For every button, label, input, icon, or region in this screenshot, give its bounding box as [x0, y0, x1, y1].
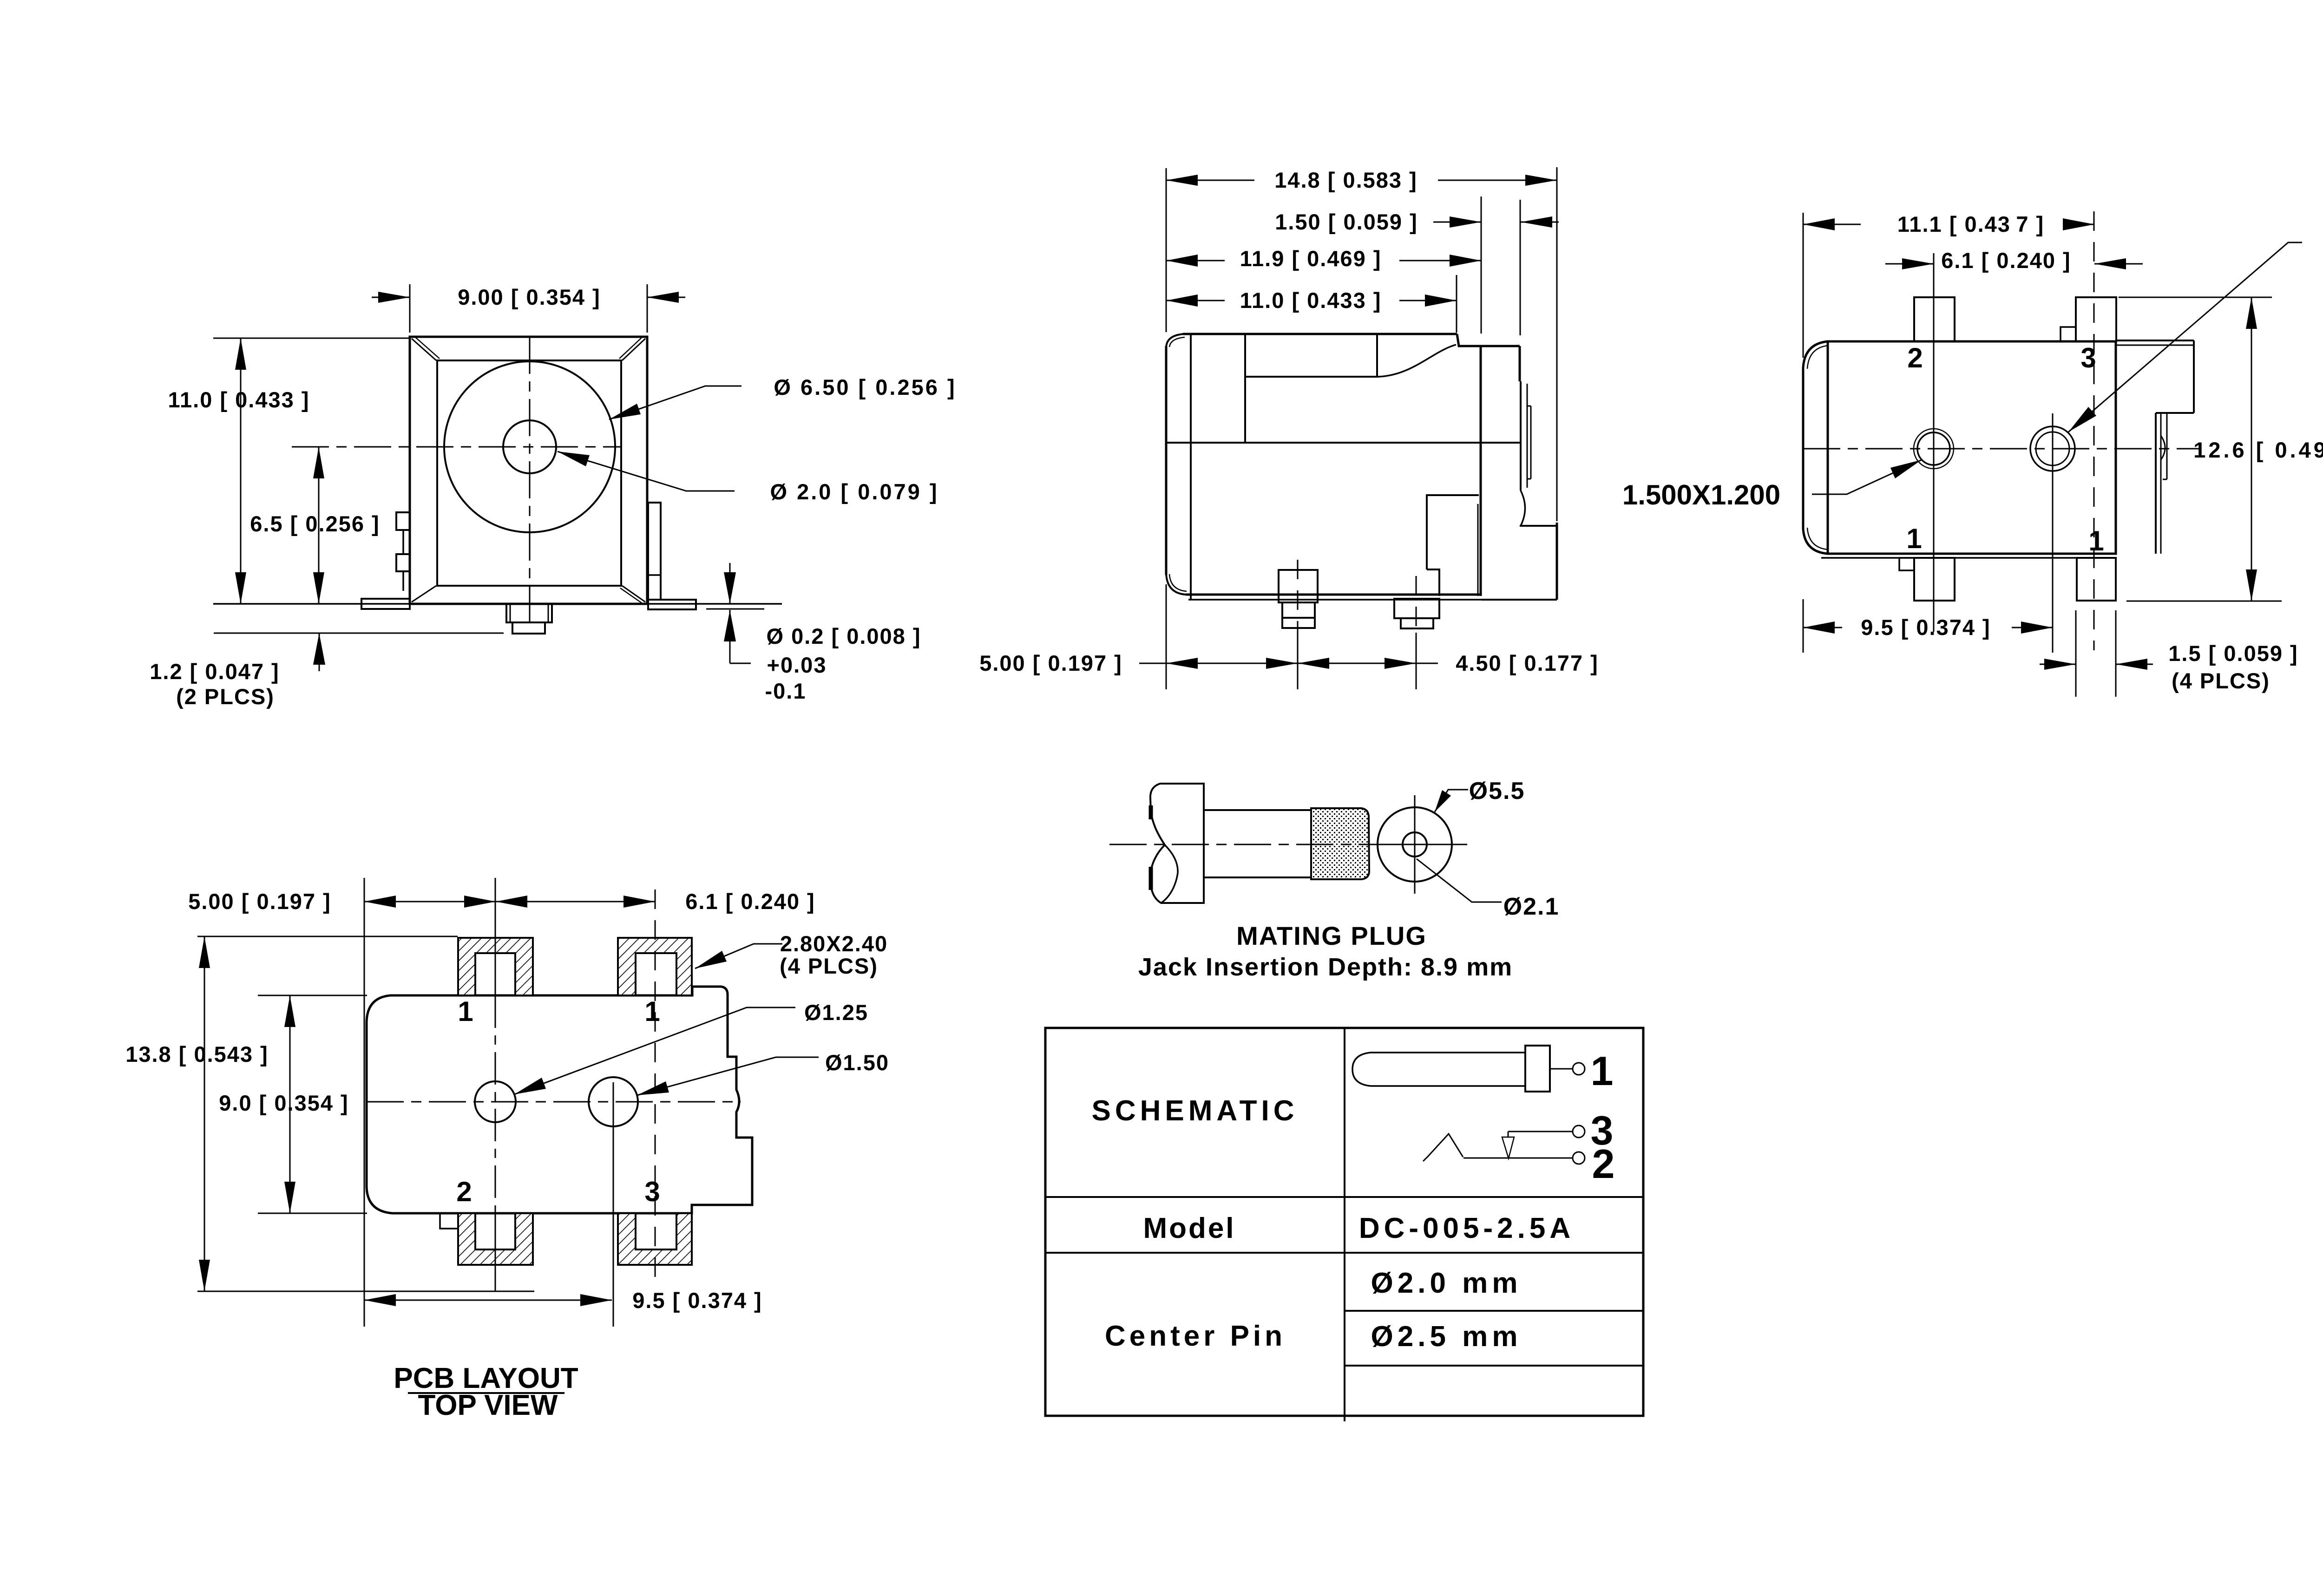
svg-text:MATING PLUG: MATING PLUG	[1236, 921, 1427, 950]
svg-text:1.5 [ 0.059 ]: 1.5 [ 0.059 ]	[2168, 641, 2298, 666]
svg-text:11.0 [ 0.433 ]: 11.0 [ 0.433 ]	[1240, 288, 1382, 313]
svg-text:(4 PLCS): (4 PLCS)	[780, 954, 878, 978]
svg-text:3: 3	[2080, 342, 2096, 373]
svg-text:(4 PLCS): (4 PLCS)	[2172, 668, 2270, 693]
svg-text:9.0 [ 0.354 ]: 9.0 [ 0.354 ]	[219, 1091, 348, 1115]
svg-text:1: 1	[1591, 1048, 1614, 1094]
svg-text:1.500X1.200: 1.500X1.200	[1622, 479, 1780, 510]
svg-text:SCHEMATIC: SCHEMATIC	[1092, 1095, 1299, 1127]
svg-text:(2 PLCS): (2 PLCS)	[176, 684, 275, 709]
svg-text:5.00 [ 0.197 ]: 5.00 [ 0.197 ]	[979, 651, 1122, 675]
svg-text:DC-005-2.5A: DC-005-2.5A	[1359, 1212, 1575, 1244]
svg-text:12.6 [ 0.496 ]: 12.6 [ 0.496 ]	[2193, 438, 2323, 462]
svg-text:Ø 2.0 [ 0.079 ]: Ø 2.0 [ 0.079 ]	[770, 479, 938, 504]
svg-text:1: 1	[644, 996, 660, 1027]
svg-text:3: 3	[644, 1176, 660, 1207]
svg-text:2: 2	[456, 1176, 472, 1207]
svg-text:-0.1: -0.1	[765, 679, 807, 703]
svg-text:2: 2	[1592, 1141, 1615, 1187]
svg-text:5.00 [ 0.197 ]: 5.00 [ 0.197 ]	[188, 889, 331, 914]
svg-text:Ø1.25: Ø1.25	[804, 1000, 868, 1025]
svg-text:14.8 [ 0.583 ]: 14.8 [ 0.583 ]	[1274, 168, 1417, 192]
svg-text:Model: Model	[1143, 1212, 1235, 1244]
svg-text:Ø2.1: Ø2.1	[1503, 893, 1560, 920]
svg-text:9.00 [ 0.354 ]: 9.00 [ 0.354 ]	[458, 285, 601, 309]
svg-text:11.9 [ 0.469 ]: 11.9 [ 0.469 ]	[1240, 246, 1382, 271]
svg-text:Center Pin: Center Pin	[1105, 1320, 1286, 1352]
svg-text:Ø5.5: Ø5.5	[1469, 778, 1525, 805]
svg-text:9.5 [ 0.374 ]: 9.5 [ 0.374 ]	[632, 1288, 762, 1313]
svg-text:11.1 [ 0.43 7 ]: 11.1 [ 0.43 7 ]	[1897, 212, 2044, 236]
svg-text:13.8 [ 0.543 ]: 13.8 [ 0.543 ]	[125, 1042, 269, 1066]
svg-text:6.1 [ 0.240 ]: 6.1 [ 0.240 ]	[685, 889, 815, 914]
svg-text:TOP VIEW: TOP VIEW	[418, 1389, 558, 1421]
svg-text:11.0 [ 0.433 ]: 11.0 [ 0.433 ]	[168, 387, 310, 412]
svg-text:Ø 6.50 [ 0.256 ]: Ø 6.50 [ 0.256 ]	[774, 375, 956, 399]
svg-text:4.50 [ 0.177 ]: 4.50 [ 0.177 ]	[1456, 651, 1599, 675]
svg-text:Ø2.5 mm: Ø2.5 mm	[1371, 1321, 1522, 1353]
svg-text:6.5 [ 0.256 ]: 6.5 [ 0.256 ]	[250, 511, 380, 536]
svg-text:1: 1	[458, 996, 473, 1027]
svg-text:Jack Insertion Depth: 8.9 mm: Jack Insertion Depth: 8.9 mm	[1138, 953, 1513, 981]
svg-text:1.50 [ 0.059 ]: 1.50 [ 0.059 ]	[1275, 209, 1418, 234]
svg-text:Ø 0.2 [ 0.008 ]: Ø 0.2 [ 0.008 ]	[766, 624, 921, 648]
svg-text:9.5 [ 0.374 ]: 9.5 [ 0.374 ]	[1861, 615, 1990, 640]
svg-text:+0.03: +0.03	[767, 653, 827, 677]
svg-text:1.2 [ 0.047 ]: 1.2 [ 0.047 ]	[150, 659, 279, 684]
svg-text:2.80X2.40: 2.80X2.40	[780, 931, 888, 956]
svg-text:6.1 [ 0.240 ]: 6.1 [ 0.240 ]	[1941, 248, 2071, 273]
svg-text:2: 2	[1907, 342, 1923, 373]
svg-text:1: 1	[1906, 523, 1922, 554]
svg-text:1: 1	[2088, 525, 2104, 556]
svg-text:Ø2.0 mm: Ø2.0 mm	[1371, 1267, 1522, 1299]
svg-text:Ø1.50: Ø1.50	[825, 1050, 889, 1075]
